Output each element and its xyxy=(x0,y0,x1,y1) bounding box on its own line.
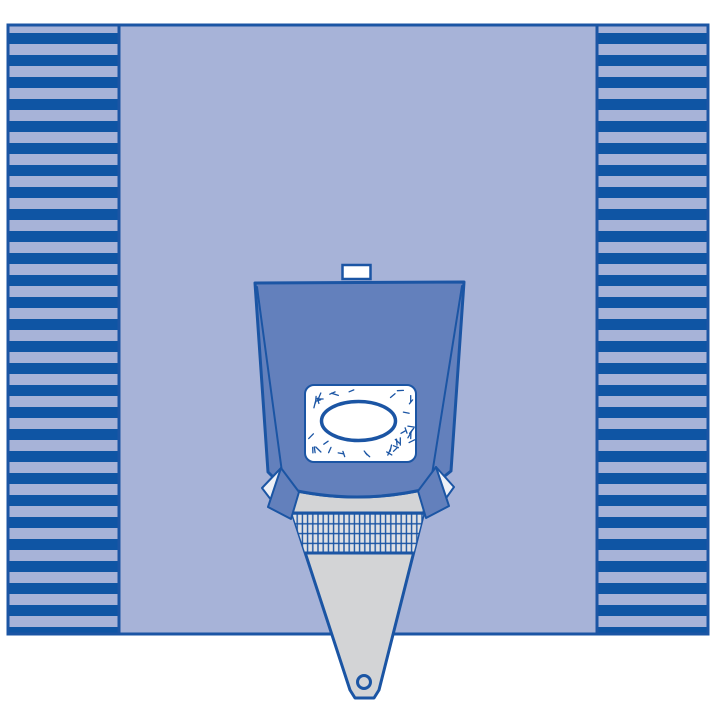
speckle-dash xyxy=(314,447,315,453)
speckle-dash xyxy=(316,396,317,403)
pleated-edge-right xyxy=(597,25,708,634)
fenestration-oval xyxy=(322,402,396,441)
mesh-filter xyxy=(280,513,438,553)
mesh-filter-band xyxy=(280,513,438,553)
drain-port xyxy=(358,676,371,689)
surgical-drape-illustration xyxy=(0,0,716,716)
pleated-edge-left xyxy=(8,25,119,634)
drape-figure xyxy=(0,0,716,716)
pouch-tab xyxy=(343,265,371,279)
